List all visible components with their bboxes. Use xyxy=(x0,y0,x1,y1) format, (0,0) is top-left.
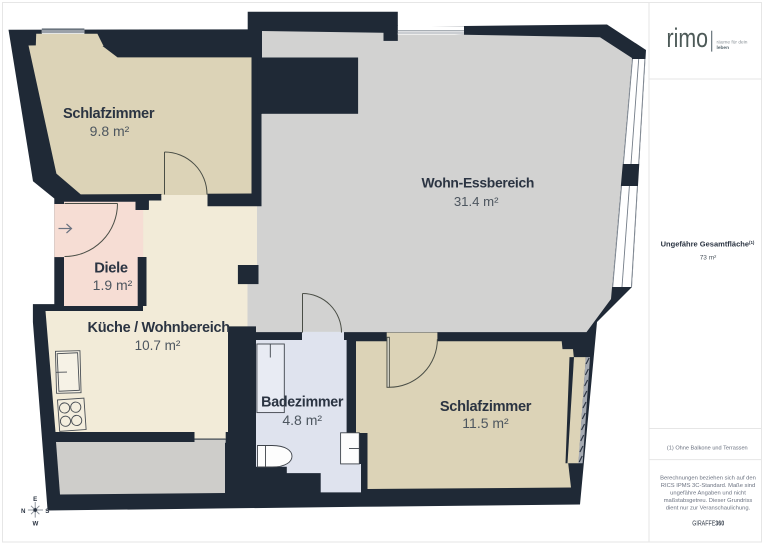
svg-text:Berechnungen beziehen sich auf: Berechnungen beziehen sich auf den xyxy=(660,475,756,481)
svg-text:Schlafzimmer: Schlafzimmer xyxy=(440,399,532,415)
svg-text:4.8 m²: 4.8 m² xyxy=(282,412,322,428)
svg-text:Schlafzimmer: Schlafzimmer xyxy=(63,106,155,122)
svg-text:leben: leben xyxy=(717,45,730,51)
svg-text:maßstabsgetreu. Dieser Grundri: maßstabsgetreu. Dieser Grundriss xyxy=(664,498,753,504)
svg-text:Badezimmer: Badezimmer xyxy=(261,394,344,410)
svg-text:S: S xyxy=(45,508,49,515)
svg-text:31.4 m²: 31.4 m² xyxy=(454,194,499,209)
svg-text:1.9 m²: 1.9 m² xyxy=(93,277,133,293)
svg-text:Küche / Wohnbereich: Küche / Wohnbereich xyxy=(88,320,230,336)
svg-text:GIRAFFE360: GIRAFFE360 xyxy=(692,521,724,528)
svg-text:(1) Ohne Balkone und Terrassen: (1) Ohne Balkone und Terrassen xyxy=(667,445,748,451)
svg-text:dient nur zur Veranschaulichun: dient nur zur Veranschaulichung. xyxy=(666,506,751,512)
svg-text:ungefähre Angaben und nicht: ungefähre Angaben und nicht xyxy=(670,491,746,497)
svg-text:10.7 m²: 10.7 m² xyxy=(135,338,181,353)
svg-text:RICS IPMS 3C-Standard. Maße si: RICS IPMS 3C-Standard. Maße sind xyxy=(661,483,755,489)
svg-text:E: E xyxy=(33,496,37,503)
svg-text:73 m²: 73 m² xyxy=(700,254,717,261)
svg-text:Wohn-Essbereich: Wohn-Essbereich xyxy=(422,175,535,191)
svg-text:N: N xyxy=(21,508,26,515)
svg-text:räume für dein: räume für dein xyxy=(717,39,748,45)
svg-text:Diele: Diele xyxy=(94,260,128,276)
svg-text:9.8 m²: 9.8 m² xyxy=(90,123,130,139)
svg-text:W: W xyxy=(32,520,38,527)
svg-text:rimo: rimo xyxy=(667,23,709,53)
svg-text:11.5 m²: 11.5 m² xyxy=(462,415,509,431)
svg-text:Ungefähre Gesamtfläche(1): Ungefähre Gesamtfläche(1) xyxy=(661,239,755,248)
